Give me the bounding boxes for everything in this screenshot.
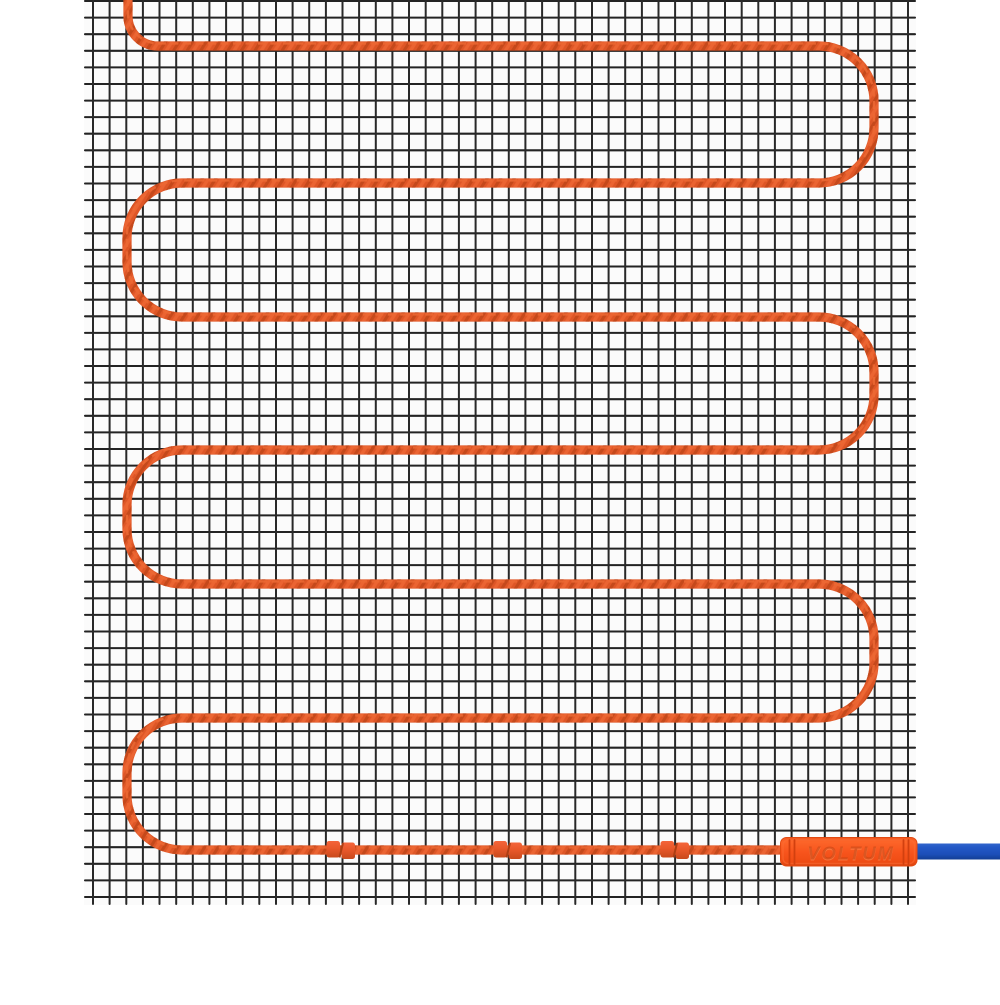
svg-text:VOLTUM: VOLTUM (807, 843, 895, 864)
